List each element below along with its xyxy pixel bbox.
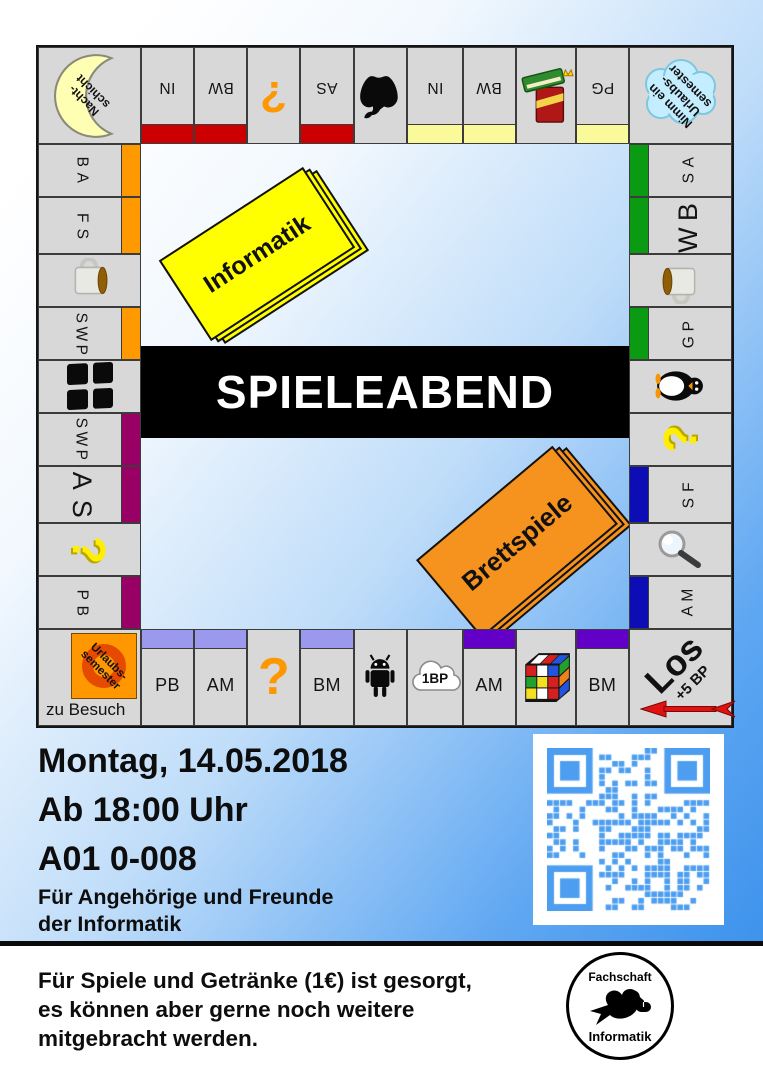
zu-besuch-label: zu Besuch <box>46 700 125 720</box>
deck-label: Brettspiele <box>456 487 579 597</box>
cell-label: PG <box>683 318 695 350</box>
event-date: Montag, 14.05.2018 <box>38 737 348 786</box>
color-bar <box>121 145 140 196</box>
board-cell-IN: IN <box>141 47 194 144</box>
board-cell-books <box>516 47 576 144</box>
board-cell-PG: PG <box>576 47 629 144</box>
board-cell-AM-b: AM <box>194 629 247 726</box>
corner-nachtschicht: Nacht- schicht <box>38 47 141 144</box>
board-cell-PG-r: PG <box>629 307 732 360</box>
color-bar <box>577 630 628 649</box>
board-cell-SWP2-l: SWP <box>38 413 141 466</box>
board-cell-MA-r: MA <box>629 576 732 629</box>
board-cell-AS-r: AS <box>629 144 732 197</box>
coffee-mug-icon <box>69 258 111 304</box>
coffee-mug-icon <box>659 258 701 304</box>
card-deck-brettspiele: Brettspiele <box>416 446 618 639</box>
cell-label: AM <box>475 675 503 696</box>
color-bar <box>577 124 628 143</box>
corner-urlaubssemester: Nimm ein Urlaubs- semester <box>629 47 732 144</box>
cell-label: PG <box>591 78 614 96</box>
board-cell-android <box>354 629 407 726</box>
cell-label: BW <box>676 198 702 254</box>
event-info: Montag, 14.05.2018 Ab 18:00 Uhr A01 0-00… <box>38 737 348 938</box>
magnifier-icon <box>654 528 706 572</box>
cell-label: AS <box>72 467 90 523</box>
board-cell-chance-r: ? <box>629 413 732 466</box>
bp-label: 1BP <box>422 671 448 686</box>
board-cell-PB-b: PB <box>141 629 194 726</box>
qr-code-box <box>533 734 724 925</box>
board-cell-window <box>38 360 141 413</box>
board-cell-BW2: BW <box>463 47 516 144</box>
cell-label: BA <box>76 154 87 186</box>
color-bar <box>630 308 649 359</box>
board-cell-FS-l: FS <box>38 197 141 255</box>
board-cell-chance: ? <box>247 47 300 144</box>
cell-label: BW <box>208 78 234 96</box>
board-cell-BA: BA <box>38 144 141 197</box>
question-mark-icon: ? <box>258 651 290 703</box>
penguin-icon <box>655 364 705 408</box>
color-bar <box>464 124 515 143</box>
color-bar <box>121 414 140 465</box>
title-banner: SPIELEABEND <box>139 346 631 438</box>
board-cell-chance-b: ? <box>247 629 300 726</box>
cell-label: FS <box>684 479 695 511</box>
logo-text-top: Fachschaft <box>569 970 671 984</box>
cell-label: PB <box>155 675 180 696</box>
board-cell-penguin <box>629 360 732 413</box>
board-cell-BW: BW <box>194 47 247 144</box>
board-cell-1bp: 1BP <box>407 629 463 726</box>
color-bar <box>630 467 649 523</box>
cell-label: AM <box>207 675 235 696</box>
board-center: Informatik SPIELEABEND Brettspiele <box>141 144 629 629</box>
deck-label: Informatik <box>198 209 315 299</box>
cell-label: SWP <box>73 415 88 463</box>
books-icon <box>517 68 575 124</box>
board-cell-BM2-b: BM <box>576 629 629 726</box>
cell-label: BM <box>313 675 341 696</box>
footer-line2: es können aber gerne noch weitere <box>38 995 472 1024</box>
card-deck-informatik: Informatik <box>159 167 356 341</box>
cell-label: PB <box>76 587 87 619</box>
cell-label: BM <box>589 675 617 696</box>
rubiks-cube-icon <box>522 651 570 703</box>
footer-line1: Für Spiele und Getränke (1€) ist gesorgt… <box>38 966 472 995</box>
board-cell-chance-l: ? <box>38 523 141 576</box>
cell-label: AS <box>684 154 695 186</box>
board-cell-apple <box>354 47 407 144</box>
qr-code <box>547 748 710 911</box>
board-cell-FS-r: FS <box>629 466 732 524</box>
footer-line3: mitgebracht werden. <box>38 1024 472 1053</box>
android-robot-icon <box>359 653 401 701</box>
urlaubssemester-label: Nimm ein Urlaubs- semester <box>646 61 715 130</box>
color-bar <box>301 124 352 143</box>
color-bar <box>630 198 649 254</box>
event-audience-line2: der Informatik <box>38 911 348 938</box>
game-board: Nacht- schicht IN BW ? AS IN <box>36 45 734 728</box>
color-bar <box>121 467 140 523</box>
question-mark-icon: ? <box>66 536 112 564</box>
dove-icon <box>586 983 658 1033</box>
board-cell-PB-l: PB <box>38 576 141 629</box>
badge-label: Urlaubs- semester <box>77 639 130 692</box>
board-cell-mug-l <box>38 254 141 307</box>
color-bar <box>464 630 515 649</box>
color-bar <box>301 630 352 649</box>
color-bar <box>408 124 462 143</box>
cell-label: FS <box>76 210 87 242</box>
color-bar <box>195 124 246 143</box>
urlaubssemester-badge: Urlaubs- semester <box>71 633 137 699</box>
cell-label: MA <box>682 587 695 619</box>
color-bar <box>121 198 140 254</box>
board-cell-BW-r: BW <box>629 197 732 255</box>
board-cell-AM2-b: AM <box>463 629 516 726</box>
board-cell-AS: AS <box>300 47 353 144</box>
cell-label: IN <box>427 78 443 96</box>
board-cell-BM-b: BM <box>300 629 353 726</box>
color-bar <box>630 145 649 196</box>
color-bar <box>195 630 246 649</box>
section-divider <box>0 941 763 946</box>
event-time: Ab 18:00 Uhr <box>38 786 348 835</box>
question-mark-icon: ? <box>657 425 703 453</box>
footer-note: Für Spiele und Getränke (1€) ist gesorgt… <box>38 966 472 1053</box>
question-mark-icon: ? <box>260 74 287 118</box>
board-cell-IN2: IN <box>407 47 463 144</box>
thought-cloud-icon: 1BP <box>408 654 462 700</box>
cell-label: SWP <box>73 310 88 358</box>
corner-zu-besuch: Urlaubs- semester zu Besuch <box>38 629 141 726</box>
window-icon <box>67 362 113 410</box>
board-cell-magnifier <box>629 523 732 576</box>
cell-label: IN <box>159 78 175 96</box>
board-cell-SWP-l: SWP <box>38 307 141 360</box>
board-cell-AS-l: AS <box>38 466 141 524</box>
color-bar <box>142 124 193 143</box>
fachschaft-logo: Fachschaft Informatik <box>566 952 674 1060</box>
cell-label: BW <box>476 78 502 96</box>
color-bar <box>630 577 649 628</box>
arrow-left-icon <box>640 700 736 718</box>
corner-los: Los +5 BP <box>629 629 732 726</box>
color-bar <box>142 630 193 649</box>
cell-label: AS <box>316 78 337 96</box>
event-audience-line1: Für Angehörige und Freunde <box>38 884 348 911</box>
event-poster: Nacht- schicht IN BW ? AS IN <box>0 0 763 1079</box>
nachtschicht-label: Nacht- schicht <box>65 71 114 120</box>
apple-icon <box>359 72 401 120</box>
board-cell-mug-r <box>629 254 732 307</box>
poster-title: SPIELEABEND <box>216 365 554 419</box>
board-cell-rubiks <box>516 629 576 726</box>
event-room: A01 0-008 <box>38 835 348 884</box>
color-bar <box>121 577 140 628</box>
color-bar <box>121 308 140 359</box>
